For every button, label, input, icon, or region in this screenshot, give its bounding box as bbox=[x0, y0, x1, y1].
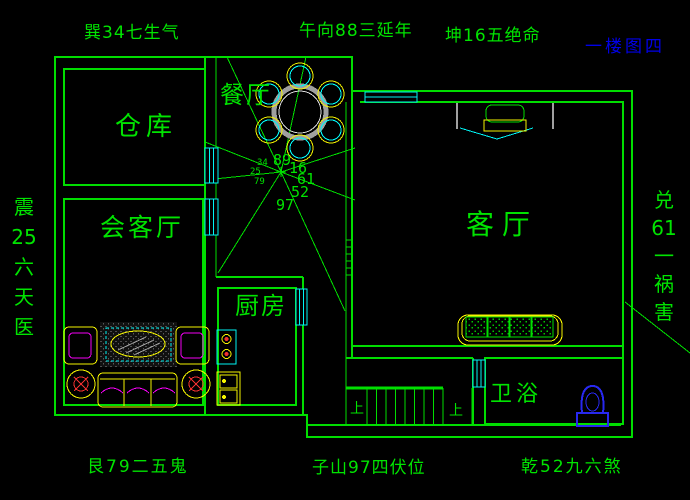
planter-box bbox=[532, 317, 553, 337]
sheet-title: 一楼图四 bbox=[585, 38, 665, 58]
toilet-bowl bbox=[582, 386, 604, 413]
room-label-reception: 会客厅 bbox=[100, 214, 184, 243]
direction-label-bottom-center: 子山97四伏位 bbox=[312, 459, 426, 479]
tv-cabinet bbox=[460, 128, 533, 139]
dining-chair bbox=[321, 120, 341, 140]
tv bbox=[486, 105, 524, 122]
toilet-seat bbox=[586, 393, 599, 411]
room-label-bathroom: 卫浴 bbox=[490, 382, 542, 407]
room-label-living: 客厅 bbox=[466, 209, 538, 241]
direction-label-right: 兑 61 一 祸 害 bbox=[649, 186, 679, 326]
sofa-cushion bbox=[127, 388, 149, 393]
direction-label-bottom-left: 艮79二五鬼 bbox=[87, 458, 189, 478]
armchair-cushion bbox=[181, 333, 203, 358]
armchair-cushion bbox=[69, 333, 91, 358]
planter-box bbox=[510, 317, 531, 337]
sofa bbox=[98, 373, 177, 407]
room-label-warehouse: 仓库 bbox=[115, 113, 177, 143]
door-bathroom bbox=[473, 360, 485, 387]
window-kitchen bbox=[296, 289, 307, 325]
compass-number-79: 79 bbox=[254, 177, 265, 187]
stairs-up-label: 上 bbox=[449, 403, 463, 419]
door-warehouse bbox=[205, 148, 218, 183]
dining-table bbox=[279, 91, 321, 133]
dining-chair bbox=[290, 138, 310, 158]
room-label-dining: 餐厅 bbox=[220, 82, 272, 110]
direction-label-top-left: 巽34七生气 bbox=[84, 24, 180, 44]
room-label-kitchen: 厨房 bbox=[235, 293, 287, 321]
sofa-cushion bbox=[101, 388, 123, 393]
compass-ray bbox=[218, 172, 281, 273]
planter-box bbox=[488, 317, 509, 337]
direction-label-left: 震 25 六 天 医 bbox=[9, 192, 39, 342]
compass-number-25: 25 bbox=[250, 167, 261, 177]
direction-label-bottom-right: 乾52九六煞 bbox=[521, 458, 623, 478]
side-table-plant bbox=[189, 377, 203, 391]
floor-plan-page: 8916615297342579上上 巽34七生气 午向88三延年 坤16五绝命… bbox=[0, 0, 690, 500]
direction-label-top-right: 坤16五绝命 bbox=[445, 27, 541, 47]
stove-knob bbox=[225, 338, 228, 341]
compass-number-97: 97 bbox=[276, 196, 294, 214]
door-reception bbox=[205, 199, 218, 235]
dining-chair bbox=[321, 84, 341, 104]
floor-plan-canvas: 8916615297342579上上 bbox=[0, 0, 690, 500]
direction-label-top-center: 午向88三延年 bbox=[299, 22, 413, 42]
dining-chair bbox=[259, 120, 279, 140]
cabinet-handle bbox=[223, 396, 226, 399]
cabinet-handle bbox=[223, 380, 226, 383]
side-table-plant bbox=[74, 377, 88, 391]
stove-knob bbox=[225, 353, 228, 356]
living-room-inner-wall bbox=[360, 102, 623, 424]
sofa-cushion bbox=[153, 388, 175, 393]
stairs-up-label: 上 bbox=[350, 401, 364, 417]
planter-box bbox=[466, 317, 487, 337]
